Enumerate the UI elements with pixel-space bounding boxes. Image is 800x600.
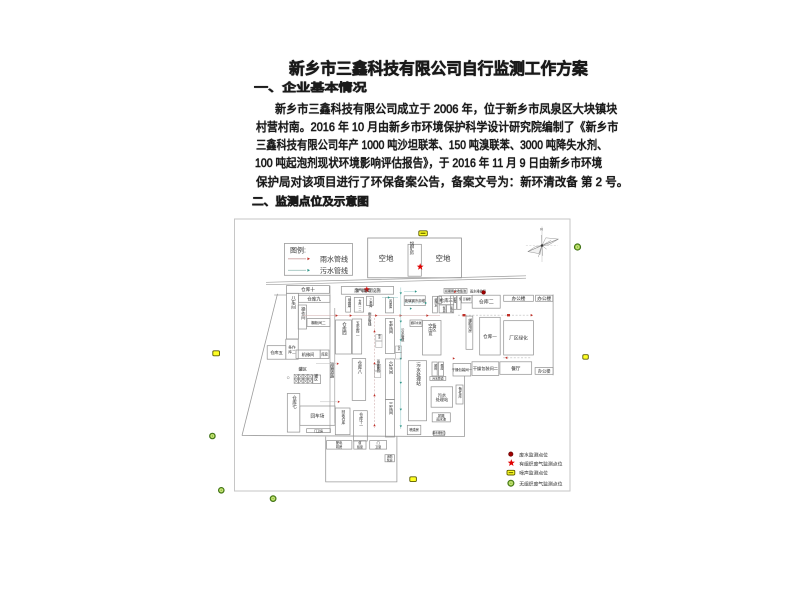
svg-text:橱柜间二: 橱柜间二 <box>311 320 326 325</box>
svg-text:干燥包装间一: 干燥包装间一 <box>452 367 473 372</box>
svg-text:喷漆房: 喷漆房 <box>409 427 419 432</box>
svg-text:污水: 污水 <box>397 345 400 351</box>
svg-text:机房: 机房 <box>336 444 342 449</box>
svg-text:污水管道: 污水管道 <box>432 377 443 381</box>
svg-text:操作间: 操作间 <box>300 306 306 321</box>
svg-text:五车间: 五车间 <box>388 320 394 335</box>
svg-text:处理站: 处理站 <box>436 396 449 403</box>
svg-text:丙类库: 丙类库 <box>389 299 393 309</box>
svg-text:办公楼: 办公楼 <box>538 368 551 375</box>
svg-text:N: N <box>540 228 543 232</box>
svg-text:回收仓库: 回收仓库 <box>341 409 346 425</box>
svg-text:办公楼: 办公楼 <box>512 295 526 302</box>
svg-text:厂区绿化: 厂区绿化 <box>509 335 528 342</box>
svg-text:雨水池: 雨水池 <box>436 417 446 422</box>
svg-text:循环水: 循环水 <box>434 298 438 308</box>
svg-text:废水监测点位: 废水监测点位 <box>519 451 548 458</box>
svg-text:六车间: 六车间 <box>388 360 394 376</box>
svg-text:污水管线: 污水管线 <box>320 266 348 275</box>
svg-text:乙类库: 乙类库 <box>369 297 373 308</box>
svg-text:辅助用房: 辅助用房 <box>468 317 473 333</box>
svg-text:班室: 班室 <box>357 444 363 449</box>
svg-text:污水处理站: 污水处理站 <box>416 362 422 387</box>
svg-text:仓库十一: 仓库十一 <box>359 412 364 428</box>
svg-text:干燥包装间二: 干燥包装间二 <box>473 365 498 372</box>
svg-text:门卫房: 门卫房 <box>314 428 323 433</box>
svg-text:有组织废气监测点位: 有组织废气监测点位 <box>519 460 562 467</box>
svg-text:罐区: 罐区 <box>314 373 319 381</box>
svg-text:罐区: 罐区 <box>299 365 307 372</box>
svg-text:雨水排放口: 雨水排放口 <box>433 431 446 435</box>
svg-text:回车场: 回车场 <box>311 412 325 419</box>
svg-text:仓库一: 仓库一 <box>483 333 497 340</box>
svg-text:雨水: 雨水 <box>377 334 380 340</box>
svg-text:备件库: 备件库 <box>458 386 463 398</box>
svg-text:雨水: 雨水 <box>376 364 379 370</box>
svg-text:运输道路: 运输道路 <box>330 361 335 379</box>
svg-text:无组织废气监测点位: 无组织废气监测点位 <box>519 481 562 488</box>
svg-text:仓库八: 仓库八 <box>357 359 363 374</box>
svg-text:雨水管线: 雨水管线 <box>320 255 348 264</box>
svg-text:仓库十: 仓库十 <box>301 286 315 293</box>
svg-text:仓库七: 仓库七 <box>292 394 298 409</box>
svg-text:卸料: 卸料 <box>434 363 438 371</box>
svg-text:空地: 空地 <box>436 253 451 263</box>
svg-text:泵房: 泵房 <box>387 458 393 462</box>
svg-text:甲类库: 甲类库 <box>347 298 351 308</box>
svg-text:泵房: 泵房 <box>442 306 445 313</box>
svg-text:仓库九: 仓库九 <box>307 296 321 303</box>
svg-text:库二: 库二 <box>288 349 296 354</box>
svg-text:循环水池: 循环水池 <box>411 321 422 325</box>
svg-text:污水管道: 污水管道 <box>400 327 404 342</box>
svg-text:五福楼: 五福楼 <box>463 297 471 301</box>
svg-text:八车间: 八车间 <box>291 295 297 310</box>
svg-text:泵房: 泵房 <box>440 363 444 371</box>
svg-text:仓库二: 仓库二 <box>479 299 494 306</box>
svg-text:备区: 备区 <box>432 322 437 331</box>
svg-text:废气排放口: 废气排放口 <box>357 289 371 293</box>
svg-text:仓库四: 仓库四 <box>342 321 348 336</box>
svg-text:机修间: 机修间 <box>302 351 315 358</box>
svg-text:锅炉房: 锅炉房 <box>409 240 415 256</box>
svg-text:仓库五: 仓库五 <box>270 349 283 356</box>
svg-text:图例:: 图例: <box>290 246 306 255</box>
svg-text:五金库二: 五金库二 <box>355 321 360 336</box>
svg-text:餐厅: 餐厅 <box>511 365 521 372</box>
svg-text:仓库一二: 仓库一二 <box>358 299 362 311</box>
svg-text:库房: 库房 <box>321 351 327 356</box>
svg-text:雨水管线: 雨水管线 <box>367 312 371 326</box>
svg-text:玻璃钢冷却塔: 玻璃钢冷却塔 <box>405 298 426 303</box>
svg-text:空地: 空地 <box>379 253 394 263</box>
svg-text:卫室: 卫室 <box>375 444 381 449</box>
svg-text:噪声监测点位: 噪声监测点位 <box>519 470 548 477</box>
svg-text:三车间: 三车间 <box>388 401 394 416</box>
svg-text:配电: 配电 <box>453 297 456 304</box>
svg-text:办公楼: 办公楼 <box>537 295 551 302</box>
